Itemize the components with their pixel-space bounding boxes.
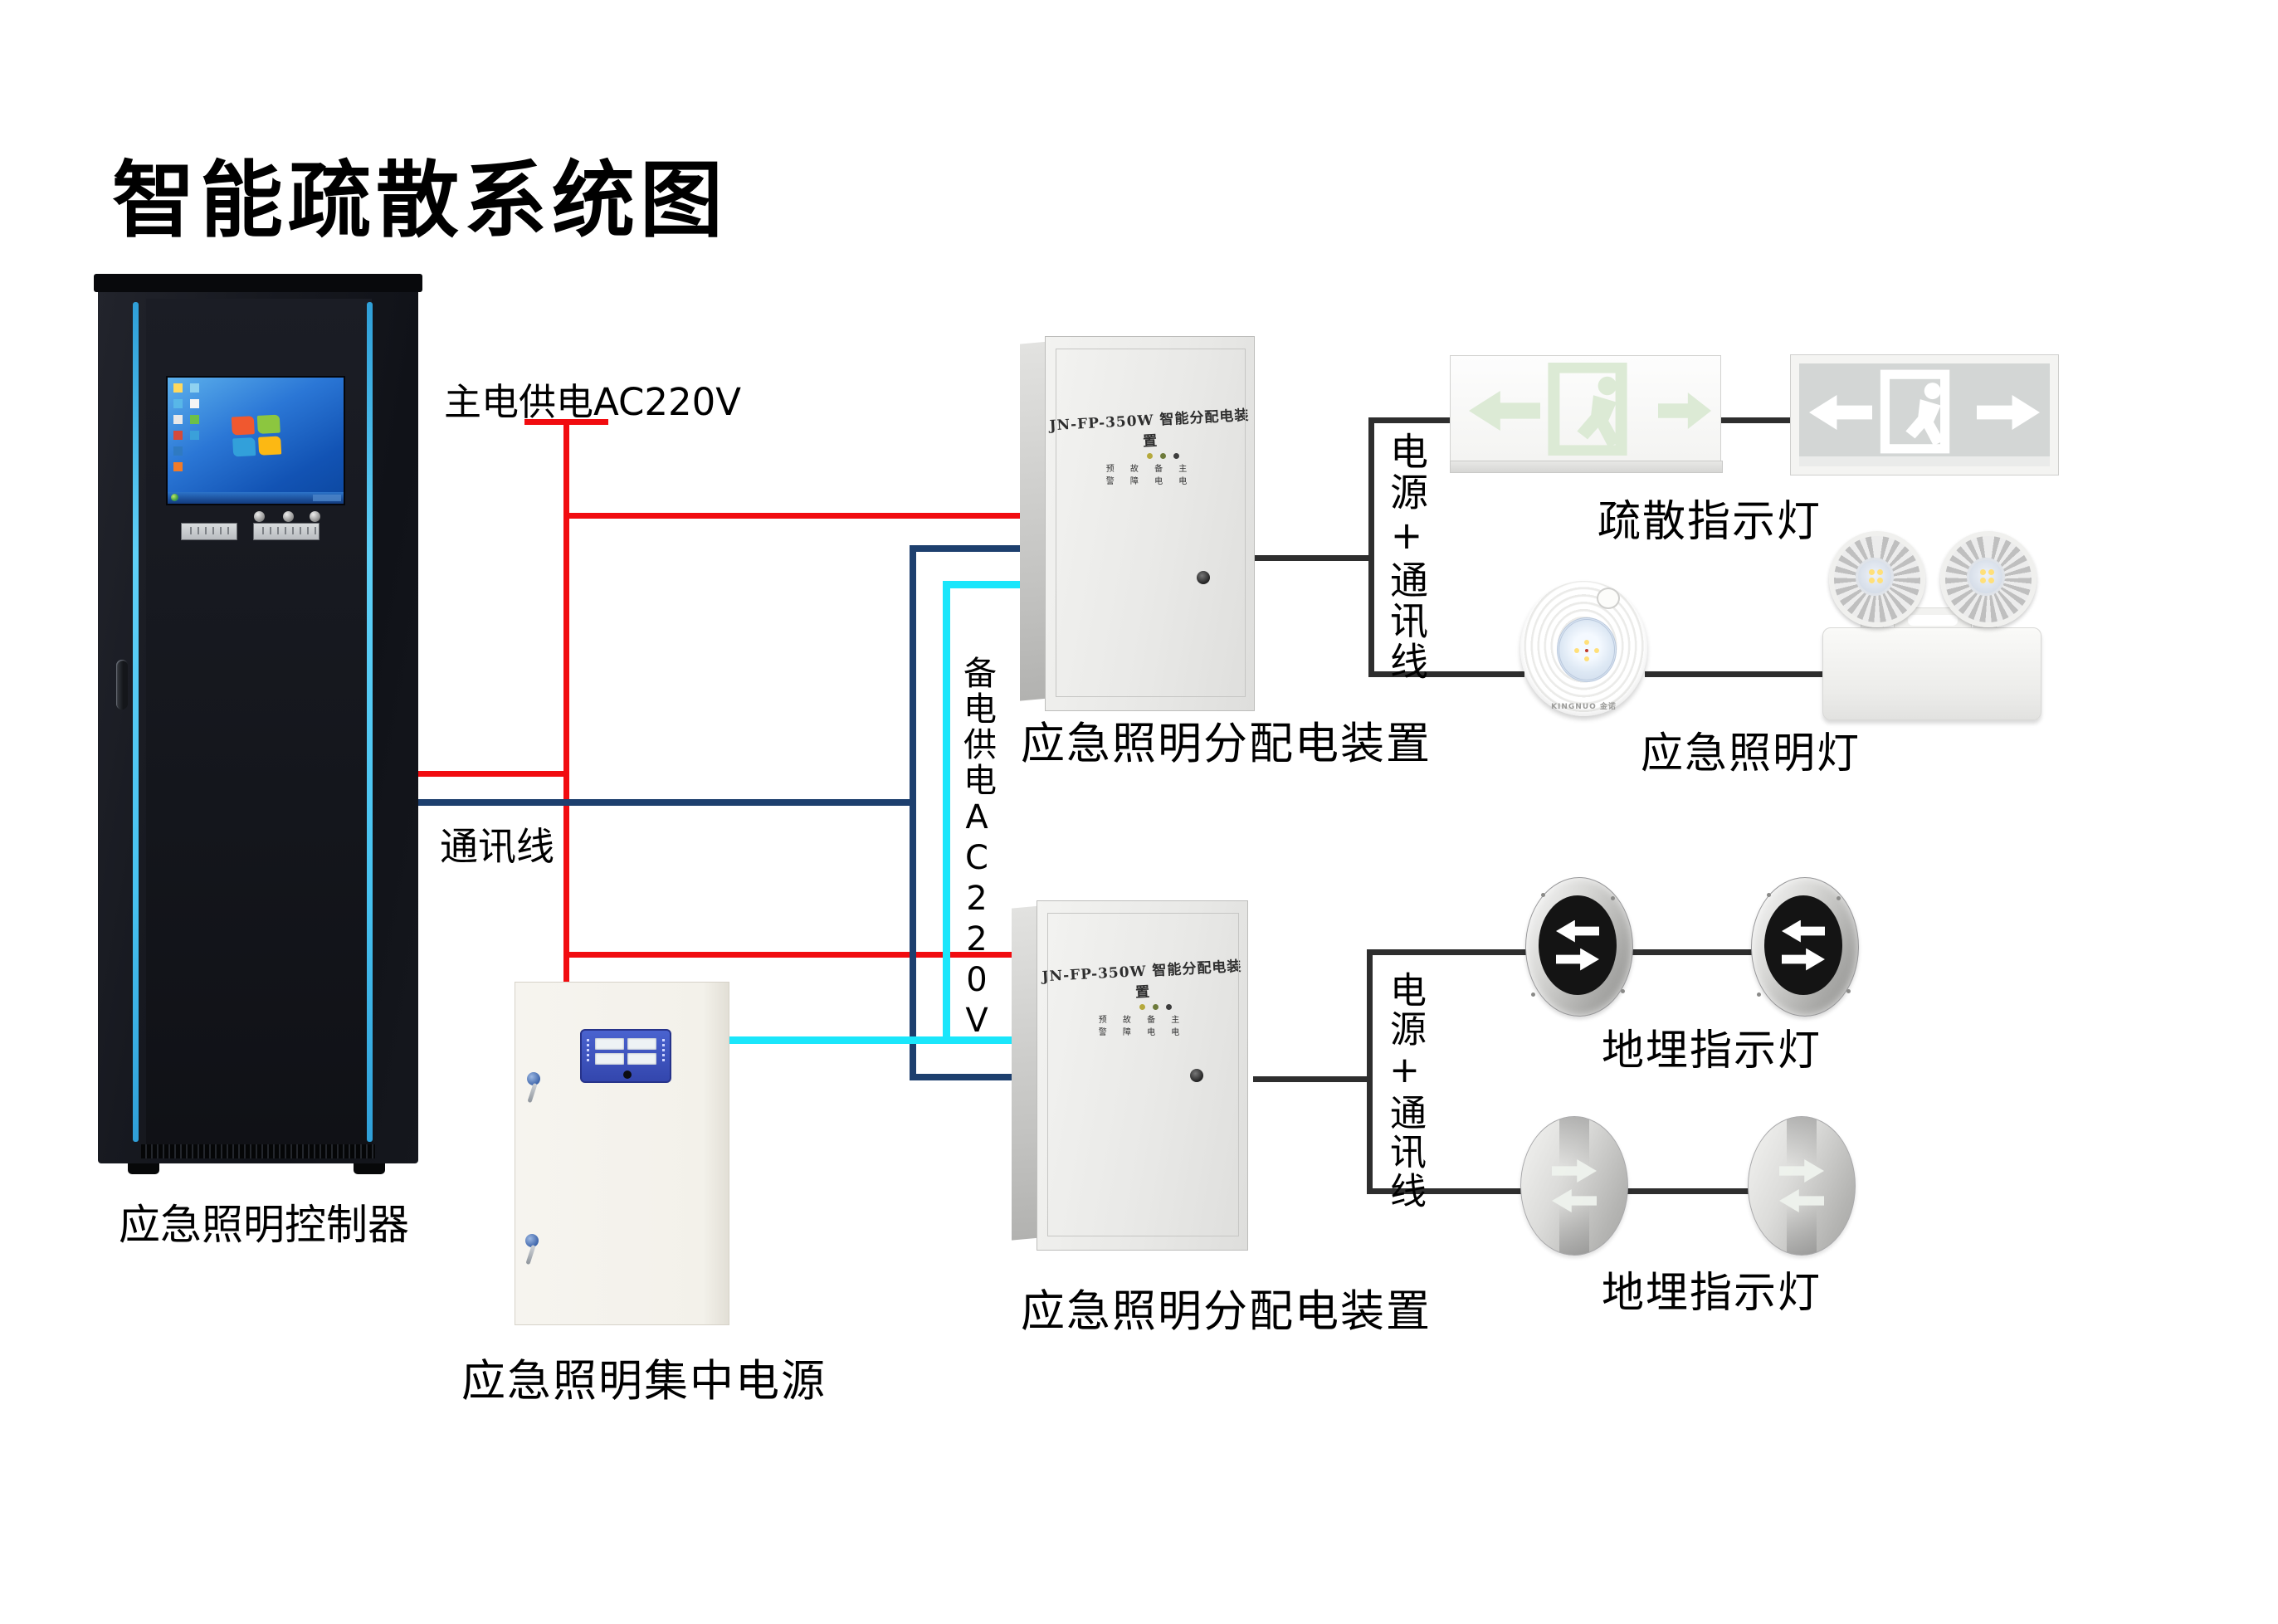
exit-sign1-running-man-icon xyxy=(1547,363,1651,456)
psu-led-column-right xyxy=(662,1039,665,1041)
ground-light-1b-left-arrow-icon xyxy=(1782,920,1825,943)
distribution-box-1-label: 应急照明分配电装置 xyxy=(1021,709,1432,772)
dome-light-button xyxy=(1597,588,1620,609)
box2-bracket-spine xyxy=(1367,949,1373,1194)
ground-light-2b-right-arrow-icon xyxy=(1779,1159,1824,1183)
box1-indicator-row1: 预 故 备 主 xyxy=(1046,465,1254,475)
ground-light-2b xyxy=(1748,1116,1856,1256)
exit-sign1-right-arrow-icon xyxy=(1658,393,1711,429)
central-power-label: 应急照明集中电源 xyxy=(461,1346,827,1409)
cabinet-vent-grille xyxy=(141,1144,375,1158)
box2-led-dots xyxy=(1139,1004,1145,1010)
dome-emergency-light: KINGNUO 金诺 xyxy=(1520,581,1647,716)
box1-keyhole[interactable] xyxy=(1197,571,1210,584)
cabinet-knob-2[interactable] xyxy=(283,511,294,522)
distribution-box-1: JN-FP-350W 智能分配电装置 预 故 备 主 警 障 电 电 xyxy=(1020,336,1255,711)
box2-front-door: JN-FP-350W 智能分配电装置 预 故 备 主 警 障 电 电 xyxy=(1037,900,1248,1251)
box1-indicator-row2: 警 障 电 电 xyxy=(1046,477,1254,487)
twin-lamp-head-right xyxy=(1940,531,2037,627)
emergency-lighting-controller-cabinet xyxy=(98,274,418,1174)
central-power-supply-box xyxy=(515,982,729,1325)
box1-indicators: 预 故 备 主 警 障 电 电 xyxy=(1046,446,1254,487)
ground-light-2a-left-arrow-icon xyxy=(1552,1189,1597,1212)
ground-light-1b-right-arrow-icon xyxy=(1782,949,1825,971)
comm-line-to-box2 xyxy=(910,1074,1014,1080)
cabinet-door-handle[interactable] xyxy=(116,660,128,710)
twin-head-emergency-light xyxy=(1822,531,2040,720)
box2-keyhole[interactable] xyxy=(1190,1069,1203,1082)
power-comm-label-2: 电源+通讯线 xyxy=(1378,971,1431,1211)
backup-power-label: 备电供电AC220V xyxy=(953,656,1001,1042)
box2-output-line xyxy=(1253,1076,1371,1082)
comm-line-label: 通讯线 xyxy=(440,817,554,871)
ground-lights-row1-label: 地埋指示灯 xyxy=(1602,1016,1822,1077)
exit-sign2-running-man-icon xyxy=(1879,368,1972,455)
psu-led-column-left xyxy=(587,1039,589,1041)
exit-sign2-right-arrow-icon xyxy=(1977,395,2040,430)
dome-led-dots xyxy=(1584,640,1589,645)
exit-signs-label: 疏散指示灯 xyxy=(1598,486,1822,549)
emergency-lights-label: 应急照明灯 xyxy=(1641,719,1861,780)
cabinet-control-strip-1 xyxy=(181,523,237,540)
main-power-trunk-vertical xyxy=(563,422,569,984)
psu-control-panel xyxy=(580,1029,671,1083)
controller-label: 应急照明控制器 xyxy=(110,1192,417,1251)
exit-sign2-left-arrow-icon xyxy=(1809,395,1872,430)
ground-light-screws xyxy=(1541,893,1545,897)
twin-light-body xyxy=(1822,627,2041,720)
ground-light-2a xyxy=(1520,1116,1628,1256)
cabinet-control-strip-2 xyxy=(253,523,320,540)
comm-line-to-box1 xyxy=(910,545,1024,552)
main-power-label: 主电供电AC220V xyxy=(444,372,741,426)
psu-lock-top[interactable] xyxy=(527,1072,540,1085)
ground-light-1a xyxy=(1525,877,1633,1017)
exit-sign-1 xyxy=(1450,355,1721,461)
start-orb-icon xyxy=(171,494,178,501)
cabinet-knob-3[interactable] xyxy=(310,511,320,522)
cabinet-knob-1[interactable] xyxy=(254,511,265,522)
backup-power-vertical xyxy=(943,581,950,1044)
ground-light-screws xyxy=(1767,893,1771,897)
exit-sign-2 xyxy=(1791,355,2058,475)
psu-button[interactable] xyxy=(623,1070,632,1079)
cabinet-monitor-screen[interactable] xyxy=(166,376,345,505)
ground-light-2b-left-arrow-icon xyxy=(1779,1189,1824,1212)
ground-light-2a-right-arrow-icon xyxy=(1552,1159,1597,1183)
box1-bracket-spine xyxy=(1368,417,1374,677)
cabinet-foot-right xyxy=(354,1163,385,1174)
distribution-box-2: JN-FP-350W 智能分配电装置 预 故 备 主 警 障 电 电 xyxy=(1012,900,1248,1251)
box2-indicator-row2: 警 障 电 电 xyxy=(1037,1028,1247,1038)
cabinet-led-strip-right xyxy=(367,302,373,1142)
diagram-canvas: 智能疏散系统图 主电供电AC220V 通讯线 备电供电AC220V 电源+通讯线… xyxy=(0,0,2278,1624)
desktop-icons xyxy=(173,383,183,393)
ground1-link xyxy=(1627,949,1755,955)
ground-light-1a-right-arrow-icon xyxy=(1556,949,1599,971)
comm-line-vertical xyxy=(910,545,916,1080)
box2-arm-to-ground1 xyxy=(1369,949,1529,955)
emergency-light-link xyxy=(1645,671,1824,677)
dome-light-led-core xyxy=(1557,617,1617,682)
power-comm-label-1: 电源+通讯线 xyxy=(1379,432,1434,682)
backup-power-to-box1 xyxy=(943,581,1024,588)
taskbar xyxy=(168,492,344,504)
twin-lamp-head-left xyxy=(1829,531,1925,627)
psu-lock-bottom[interactable] xyxy=(525,1234,539,1247)
ground2-link xyxy=(1620,1188,1753,1194)
ground-light-1b xyxy=(1751,877,1859,1017)
comm-line-from-cabinet xyxy=(413,799,916,806)
exit-sign-link xyxy=(1718,417,1793,423)
box2-panel-title: JN-FP-350W 智能分配电装置 xyxy=(1037,953,1248,1006)
exit-sign1-base xyxy=(1450,461,1723,473)
ground-lights-row2-label: 地埋指示灯 xyxy=(1602,1258,1822,1319)
dome-brand-text: KINGNUO 金诺 xyxy=(1520,700,1647,711)
windows-logo xyxy=(232,415,281,457)
page-title: 智能疏散系统图 xyxy=(112,133,728,253)
system-tray xyxy=(313,495,341,501)
ground-light-1a-left-arrow-icon xyxy=(1556,920,1599,943)
psu-displays xyxy=(595,1038,656,1065)
main-power-cabinet-link xyxy=(413,771,568,777)
box1-arm-to-exit-sign xyxy=(1371,417,1451,423)
main-power-branch-box1 xyxy=(567,513,1025,519)
box1-led-dots xyxy=(1147,453,1153,459)
box2-indicators: 预 故 备 主 警 障 电 电 xyxy=(1037,997,1247,1038)
distribution-box-2-label: 应急照明分配电装置 xyxy=(1021,1276,1432,1339)
box2-indicator-row1: 预 故 备 主 xyxy=(1037,1016,1247,1026)
box1-panel-title: JN-FP-350W 智能分配电装置 xyxy=(1045,402,1255,455)
cabinet-top-cap xyxy=(94,274,422,292)
box1-output-line xyxy=(1249,555,1371,561)
cabinet-foot-left xyxy=(128,1163,159,1174)
exit-sign1-left-arrow-icon xyxy=(1469,391,1540,431)
box1-front-door: JN-FP-350W 智能分配电装置 预 故 备 主 警 障 电 电 xyxy=(1045,336,1255,711)
cabinet-led-strip-left xyxy=(133,302,139,1142)
